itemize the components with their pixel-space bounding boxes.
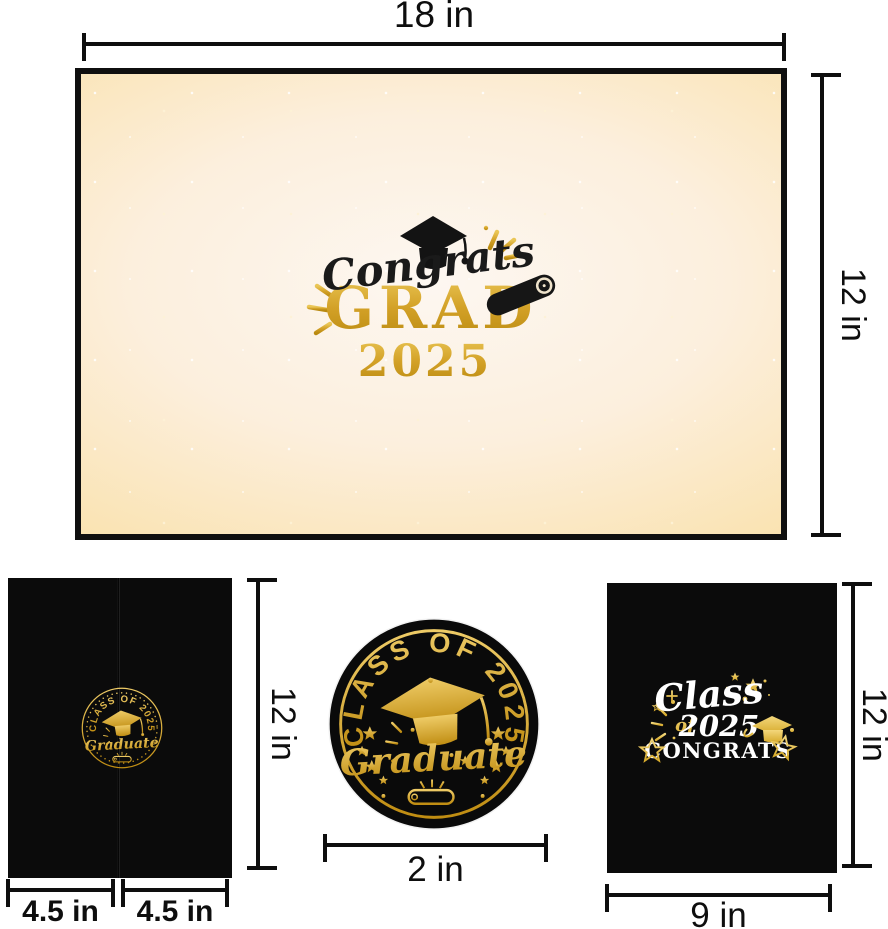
sparkle-dot — [484, 226, 488, 230]
card-width-label: 9 in — [605, 898, 832, 929]
backdrop-year-text: 2025 — [358, 336, 492, 387]
folder-left-panel-measure-line — [6, 888, 115, 892]
backdrop-banner: GRAD Congrats 2025 — [75, 68, 787, 540]
backdrop-width-label: 18 in — [82, 0, 786, 35]
backdrop-artwork: GRAD Congrats 2025 — [281, 200, 581, 395]
card-congrats-text: CONGRATS — [644, 738, 792, 763]
folder-height-measure-line — [256, 578, 260, 870]
sticker-diameter-label: 2 in — [323, 852, 548, 889]
folder-height-label: 12 in — [262, 578, 302, 870]
congrats-card: Class of 2025 CONGRATS — [607, 583, 837, 873]
sparkle-dot — [381, 794, 385, 798]
backdrop-height-measure-line — [820, 73, 824, 537]
backdrop-width-measure-line — [82, 42, 786, 46]
sparkle-dot — [411, 728, 415, 732]
graduation-product-dimensions-image: 18 in GRAD — [0, 0, 888, 929]
backdrop-height-label: 12 in — [832, 73, 872, 537]
sparkle-dot — [764, 680, 767, 683]
diploma-scroll-icon — [113, 752, 131, 762]
sticker-diameter-measure-line — [323, 843, 548, 847]
graduation-cap-icon — [101, 709, 144, 740]
card-artwork: Class of 2025 CONGRATS — [607, 583, 837, 873]
sparkle-dot — [481, 794, 485, 798]
folder-right-panel-measure-line — [121, 888, 229, 892]
folder-left-panel-label: 4.5 in — [2, 896, 119, 928]
folder-badge: CLASS OF 2025 Graduate — [76, 682, 168, 774]
folder-right-panel-label: 4.5 in — [118, 896, 232, 928]
sparkle-dot — [768, 694, 770, 696]
certificate-folder: CLASS OF 2025 Graduate — [8, 578, 232, 878]
round-sticker: CLASS OF 2025 Graduate — [327, 617, 541, 831]
card-height-label: 12 in — [857, 582, 888, 868]
